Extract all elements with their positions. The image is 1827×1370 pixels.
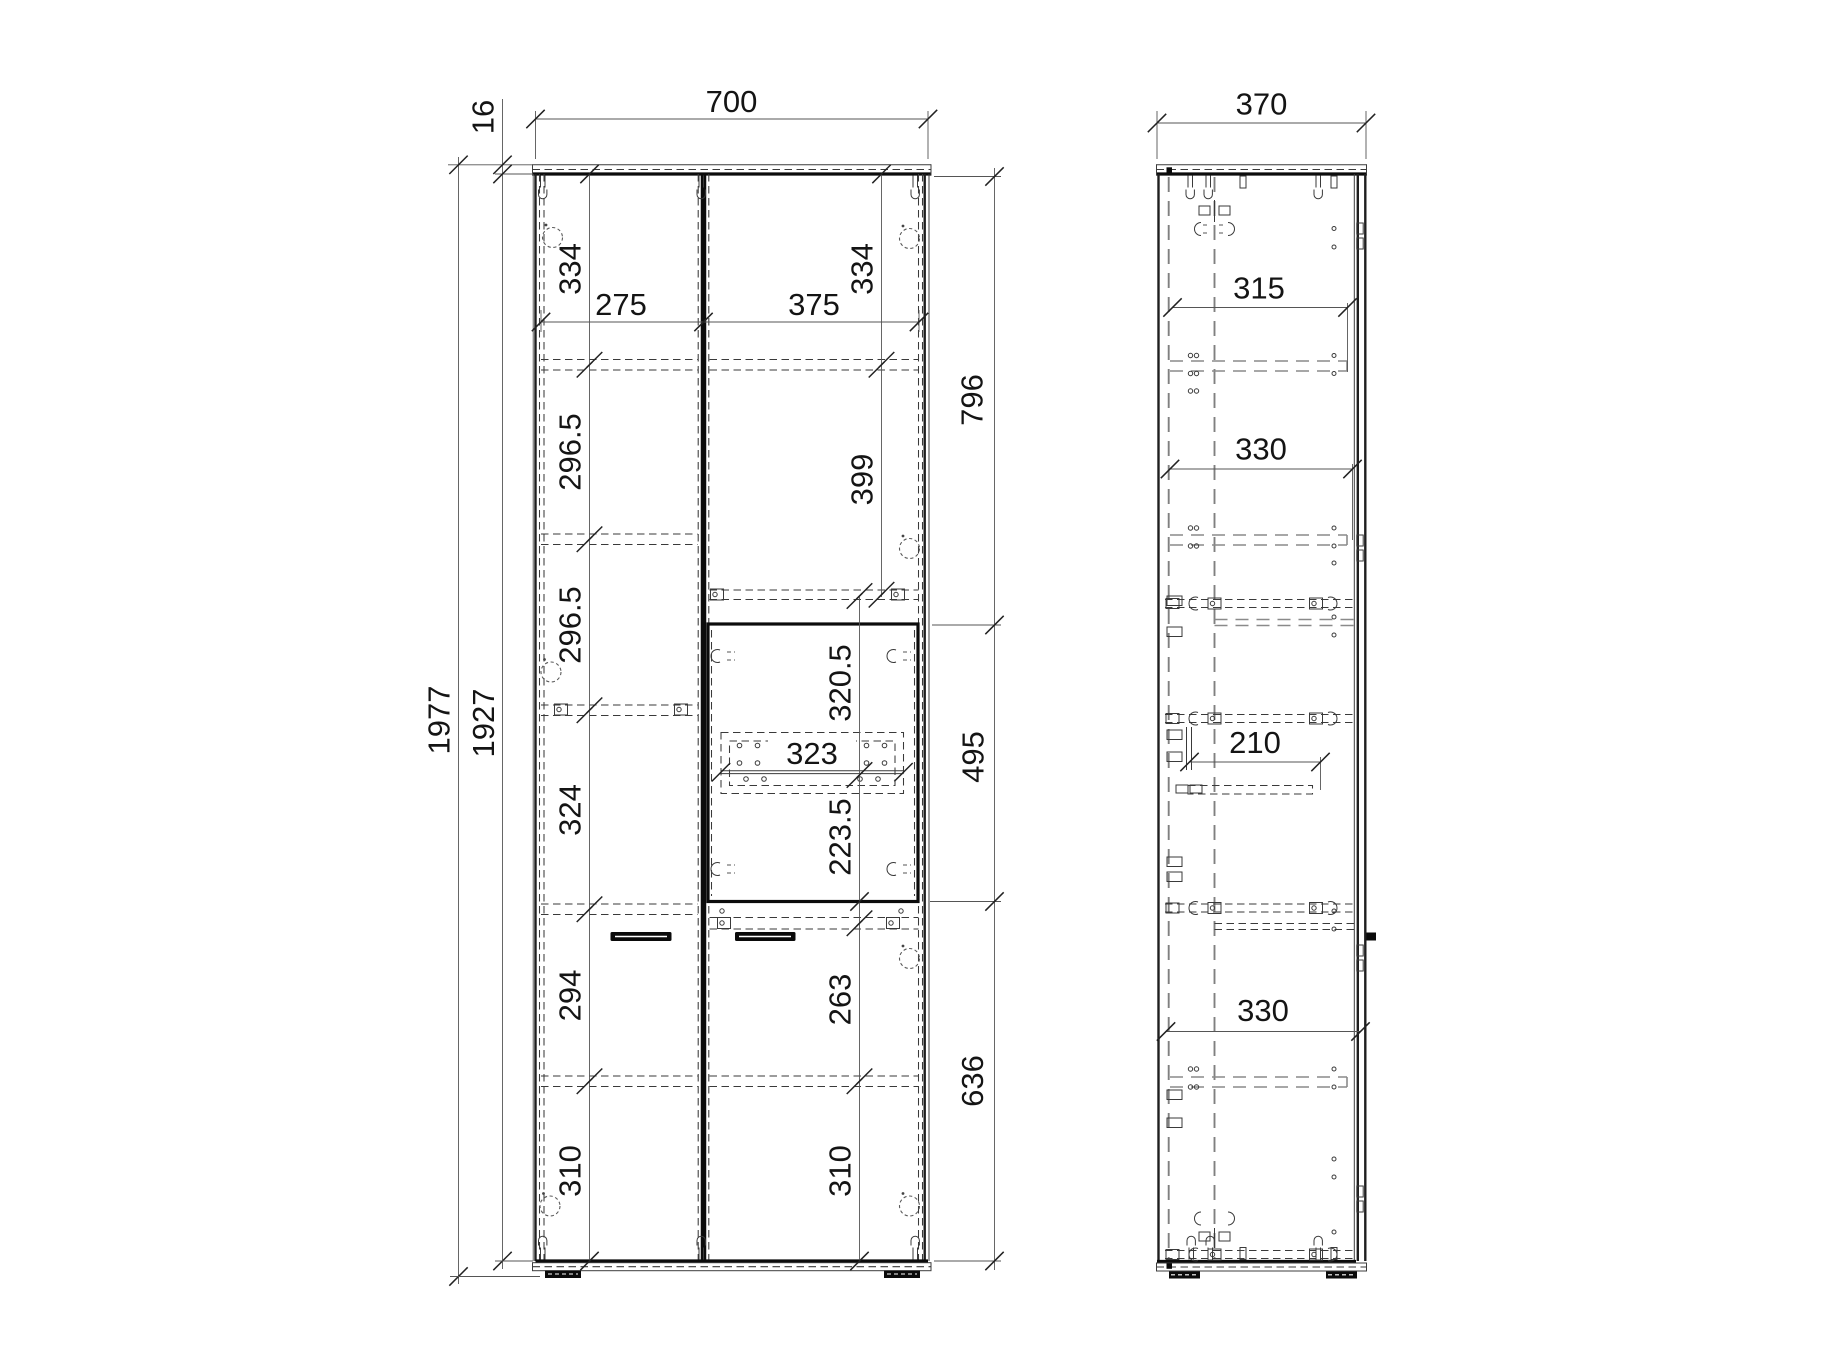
svg-text:370: 370 [1236,87,1288,122]
svg-text:223.5: 223.5 [823,798,858,876]
svg-text:263: 263 [823,974,858,1026]
svg-text:275: 275 [595,287,647,322]
svg-text:375: 375 [788,287,840,322]
svg-text:310: 310 [553,1145,588,1197]
svg-text:330: 330 [1235,432,1287,467]
svg-text:796: 796 [955,374,990,426]
svg-text:1927: 1927 [466,689,501,758]
svg-text:323: 323 [786,736,838,771]
svg-text:636: 636 [955,1055,990,1107]
svg-text:399: 399 [845,454,880,506]
svg-text:1977: 1977 [422,686,457,755]
svg-text:324: 324 [553,784,588,836]
svg-text:495: 495 [956,731,991,783]
svg-text:210: 210 [1229,725,1281,760]
svg-text:330: 330 [1237,993,1289,1028]
svg-text:296.5: 296.5 [553,413,588,491]
svg-text:310: 310 [823,1145,858,1197]
svg-text:16: 16 [466,100,501,134]
svg-text:315: 315 [1233,271,1285,306]
svg-text:294: 294 [553,970,588,1022]
svg-text:334: 334 [845,243,880,295]
svg-text:334: 334 [553,243,588,295]
svg-text:296.5: 296.5 [553,586,588,664]
svg-text:700: 700 [706,84,758,119]
svg-text:320.5: 320.5 [823,644,858,722]
